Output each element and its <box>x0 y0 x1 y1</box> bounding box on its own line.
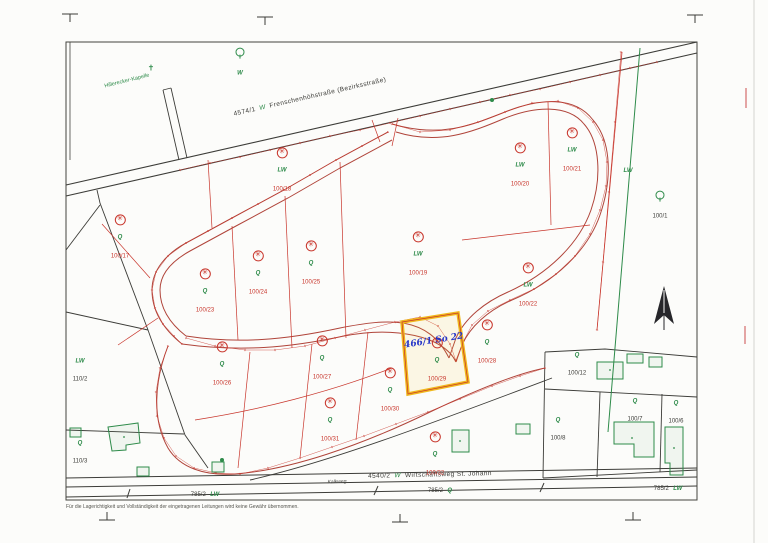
north-arrow-icon <box>654 286 674 330</box>
land-use-letter: W <box>259 104 267 112</box>
highlighted-parcel <box>402 313 468 394</box>
land-use-letter: W <box>394 472 401 479</box>
buildings <box>70 354 683 476</box>
street-number: 4540/2 <box>368 472 390 480</box>
top-road <box>66 42 697 196</box>
loop-road <box>152 102 608 475</box>
tree-dot <box>220 458 224 462</box>
boundary-points <box>152 52 657 474</box>
path-label: Kalkweg <box>327 479 346 486</box>
disclaimer-text: Für die Lagerichtigkeit und Vollständigk… <box>66 504 299 510</box>
cadastral-map-sheet: 4574/1WFrenschenhöhstraße (Bezirksstraße… <box>0 0 768 543</box>
tree-dot <box>490 98 494 102</box>
chapel-lane <box>163 88 187 160</box>
parcel-division-lines <box>102 102 590 468</box>
access-road <box>250 378 552 480</box>
building-dots <box>123 369 675 449</box>
chapel-cross-icon: ✝ <box>148 64 155 73</box>
